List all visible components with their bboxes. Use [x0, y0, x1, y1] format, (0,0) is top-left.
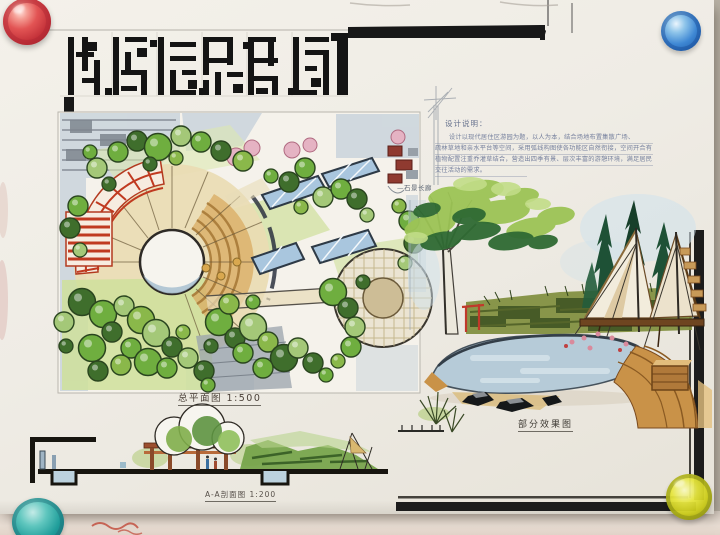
site-plan-label: 总平面图 1:500 — [178, 390, 261, 406]
push-pin-red — [3, 0, 51, 45]
photo-of-design-board: 总平面图 1:500 A-A剖面图 1:200 部分效果图 —石景长廊 设计说明… — [0, 0, 720, 535]
perspective-label: 部分效果图 — [518, 417, 573, 432]
stylized-title-lettering — [68, 33, 348, 95]
design-notes-heading: 设计说明： — [445, 118, 653, 129]
design-notes-line: 植物配置注重乔灌草结合，营造出四季有景、层次丰富的游憩环境，满足居民休闲、 — [435, 155, 653, 166]
hand-drawn-artwork — [0, 0, 720, 535]
design-notes-block: 设计说明： 设计以现代居住区游园为题，以人为本，结合场地布置集散广场、 疏林草地… — [435, 118, 653, 177]
perspective-sketch — [398, 177, 712, 432]
pond-and-deck — [424, 335, 712, 428]
section-label: A-A剖面图 1:200 — [205, 489, 276, 502]
site-plan-drawing — [54, 112, 432, 393]
design-notes-line: 设计以现代居住区游园为题，以人为本，结合场地布置集散广场、 — [435, 133, 653, 144]
design-notes-line: 疏林草地和亲水平台等空间，采用弧线构图使各功能区自然衔接，空间开合有致， — [435, 144, 653, 155]
design-notes-line: 交往活动的需求。 — [435, 166, 527, 177]
push-pin-yellow — [666, 474, 712, 520]
section-drawing — [38, 404, 388, 484]
push-pin-blue — [661, 11, 701, 51]
corridor-annotation: —石景长廊 — [397, 182, 432, 192]
